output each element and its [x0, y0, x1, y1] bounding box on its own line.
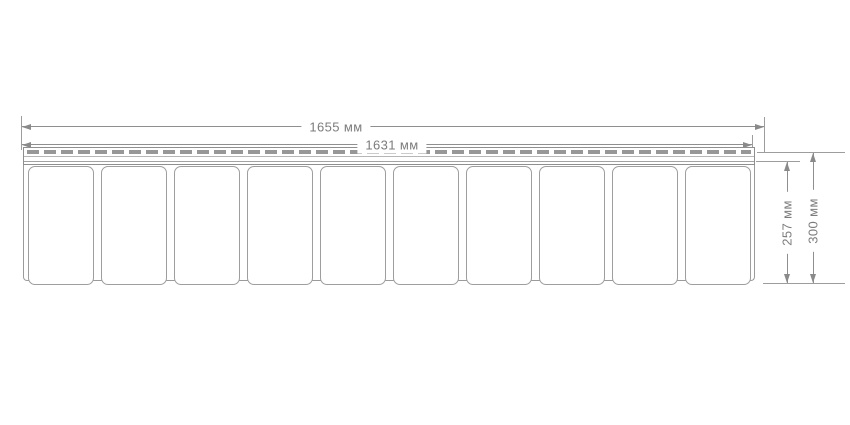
panel-segment: [174, 166, 240, 285]
extension-line-top-inner: [756, 161, 800, 162]
panel-segment: [539, 166, 605, 285]
arrow-up-icon: [784, 162, 790, 171]
extension-line-bottom: [763, 283, 845, 284]
panel-segment: [685, 166, 751, 285]
extension-line-right-outer: [764, 117, 765, 152]
panel-segment: [320, 166, 386, 285]
dim-line-total-width: [22, 126, 764, 127]
total-width-label: 1655 мм: [301, 119, 370, 136]
extension-line-right-inner: [752, 135, 753, 147]
strip-groove-line-lower: [24, 161, 754, 162]
arrow-up-icon: [810, 153, 816, 162]
strip-groove-line-upper: [24, 156, 754, 157]
exposed-height-label: 257 мм: [779, 192, 796, 254]
arrow-left-icon: [22, 124, 31, 130]
extension-line-top-outer: [757, 152, 845, 153]
total-height-label: 300 мм: [805, 190, 822, 252]
panel-segment: [612, 166, 678, 285]
panel-segment: [101, 166, 167, 285]
panel-segment: [466, 166, 532, 285]
panel-segment: [247, 166, 313, 285]
arrow-down-icon: [810, 274, 816, 283]
drawing-canvas: 1655 мм 1631 мм 257 мм 300 мм: [0, 0, 850, 425]
arrow-down-icon: [784, 274, 790, 283]
panel-row: [28, 166, 751, 285]
arrow-right-icon: [755, 124, 764, 130]
inner-width-label: 1631 мм: [357, 137, 426, 154]
panel-segment: [393, 166, 459, 285]
panel-segment: [28, 166, 94, 285]
